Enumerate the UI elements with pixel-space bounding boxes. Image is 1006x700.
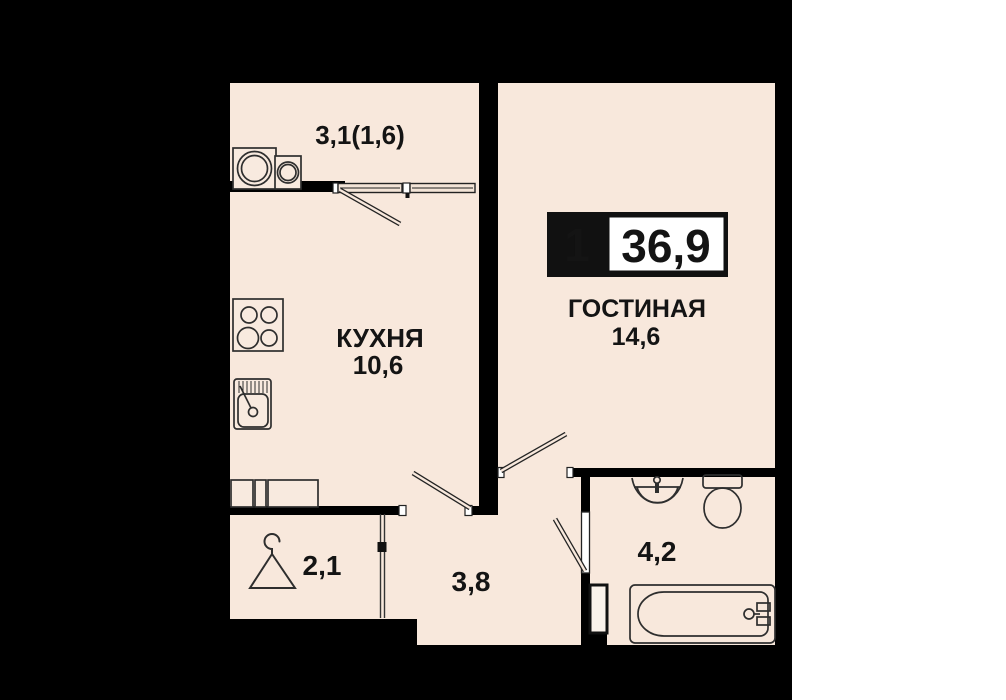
- washing-machine-large-icon: [233, 148, 276, 189]
- kitchen-cabinets-icon: [231, 480, 318, 507]
- kitchen-name-label: КУХНЯ: [336, 323, 424, 353]
- balcony-area-label: 3,1(1,6): [315, 120, 405, 150]
- area-badge: 1 36,9: [547, 212, 728, 277]
- living-area-label: 14,6: [612, 323, 661, 351]
- wall-kitchen-living: [479, 83, 498, 514]
- kitchen-sink-icon: [234, 379, 271, 429]
- wall-stub-hall: [472, 506, 498, 515]
- badge-rooms-count: 1: [564, 219, 590, 271]
- wall-shaft-cap: [589, 633, 607, 645]
- badge-total-area: 36,9: [621, 220, 711, 272]
- living-name-label: ГОСТИНАЯ: [568, 295, 706, 323]
- stove-icon: [233, 299, 283, 351]
- washing-machine-small-icon: [275, 156, 301, 189]
- duct-shaft: [590, 585, 607, 633]
- floorplan-canvas: 3,1(1,6) КУХНЯ 10,: [0, 0, 1006, 700]
- wall-bathroom-top: [573, 468, 792, 477]
- room-hallway: 3,8: [452, 566, 491, 597]
- wall-bathroom-left-upper: [581, 477, 590, 512]
- bathroom-area-label: 4,2: [638, 536, 677, 567]
- kitchen-area-label: 10,6: [353, 350, 404, 380]
- hallway-area-label: 3,8: [452, 566, 491, 597]
- wardrobe-area-label: 2,1: [303, 550, 342, 581]
- floorplan-screenshot: 3,1(1,6) КУХНЯ 10,: [0, 0, 1006, 700]
